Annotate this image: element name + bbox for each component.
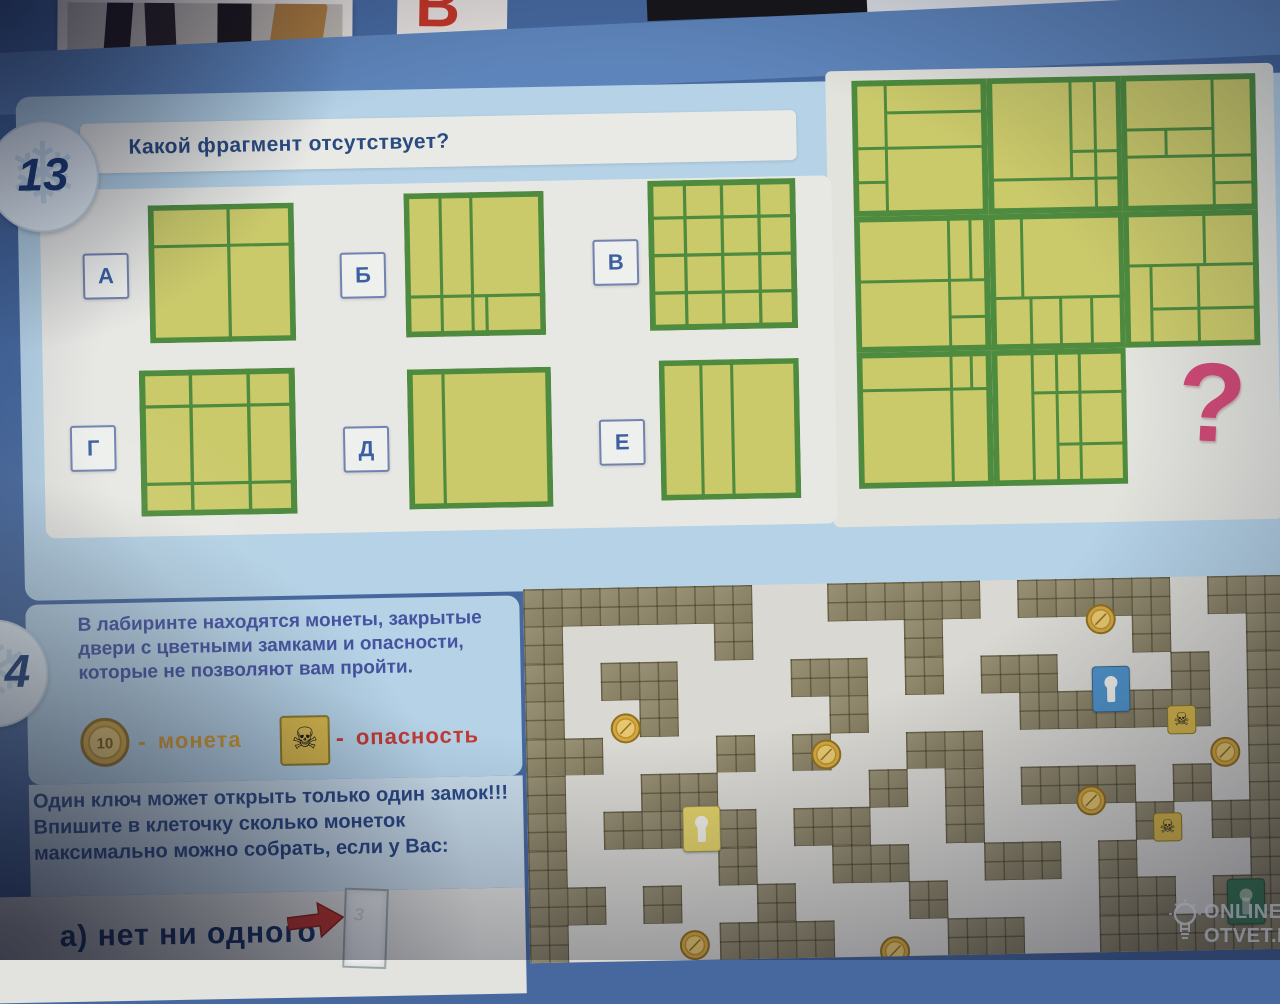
maze-wall	[564, 737, 603, 776]
maze-wall	[1132, 614, 1171, 653]
maze-wall	[795, 920, 834, 959]
maze-wall	[529, 888, 568, 927]
puzzle14-rule-text: Один ключ может открыть только один замо…	[33, 779, 520, 866]
option-label-5: Д	[343, 426, 390, 473]
maze-wall	[641, 811, 680, 850]
big-grid-tile-r0c2	[1121, 73, 1258, 212]
maze-wall	[1245, 575, 1280, 614]
maze-wall	[944, 730, 983, 769]
maze-wall	[980, 655, 1019, 694]
maze-wall	[903, 581, 942, 620]
coin-icon	[679, 929, 711, 961]
maze-wall	[714, 622, 753, 661]
maze: ☠☠	[523, 575, 1280, 964]
option-label-2: Б	[340, 252, 387, 299]
puzzle14-legend: 10 - монета ☠ - опасность	[79, 709, 520, 773]
option-label-6: Е	[599, 419, 646, 466]
maze-wall	[567, 887, 606, 926]
coin-icon	[811, 739, 843, 771]
maze-wall	[718, 847, 757, 886]
lightbulb-icon	[1168, 898, 1202, 950]
maze-wall	[904, 619, 943, 658]
legend-dash: -	[138, 729, 147, 757]
maze-wall	[527, 776, 566, 815]
maze-wall	[599, 587, 638, 626]
maze-wall	[1018, 654, 1057, 693]
option-label-3: В	[592, 239, 639, 286]
maze-wall	[603, 811, 642, 850]
maze-wall	[945, 768, 984, 807]
danger-skull-icon: ☠	[1153, 812, 1183, 842]
coin-value: 10	[96, 735, 113, 752]
maze-wall	[530, 925, 569, 963]
big-grid-tile-r2c1	[991, 348, 1128, 487]
maze-wall	[1022, 841, 1061, 880]
maze-wall	[1247, 687, 1280, 726]
maze-wall	[527, 813, 566, 852]
maze-wall	[1249, 762, 1280, 801]
maze-wall	[757, 921, 796, 960]
missing-fragment-question-mark: ?	[1174, 336, 1249, 468]
option-label-4: Г	[70, 425, 117, 472]
watermark-line2: OTVET.RU	[1204, 924, 1280, 948]
maze-wall	[829, 695, 868, 734]
maze-wall	[524, 663, 563, 702]
maze-wall	[904, 656, 943, 695]
maze-wall	[1211, 800, 1250, 839]
big-grid-tile-r1c1	[989, 212, 1126, 351]
puzzle14-intro-text: В лабиринте находятся монеты, закрытые д…	[77, 605, 520, 685]
maze-wall	[945, 805, 984, 844]
maze-wall	[831, 807, 870, 846]
maze-wall	[827, 583, 866, 622]
big-grid-tile-r0c0	[851, 78, 988, 217]
maze-wall	[1099, 877, 1138, 916]
maze-wall	[1207, 575, 1246, 614]
option-fragment-2	[403, 191, 546, 338]
big-grid-tile-r0c1	[986, 76, 1123, 215]
maze-wall	[1057, 691, 1096, 730]
maze-wall	[906, 731, 945, 770]
maze-wall	[524, 626, 563, 665]
maze-wall	[1021, 766, 1060, 805]
option-fragment-6	[659, 358, 802, 501]
maze-wall	[716, 734, 755, 773]
maze-wall	[984, 842, 1023, 881]
maze-wall	[637, 586, 676, 625]
maze-wall	[638, 661, 677, 700]
puzzle14-item-a: а) нет ни одного	[59, 915, 317, 954]
maze-wall	[757, 883, 796, 922]
legend-danger-label: опасность	[356, 722, 480, 750]
red-arrow-icon	[285, 896, 348, 945]
maze-wall	[1248, 724, 1280, 763]
maze-wall	[1017, 579, 1056, 618]
coin-icon	[1085, 604, 1117, 636]
maze-wall	[639, 699, 678, 738]
maze-wall	[1249, 799, 1280, 838]
maze-wall	[1098, 839, 1137, 878]
maze-wall	[941, 581, 980, 620]
maze-wall	[1246, 649, 1280, 688]
lock-icon	[1092, 666, 1131, 713]
coin-icon	[1075, 785, 1107, 817]
big-grid-tile-r2c0	[857, 350, 994, 489]
big-grid-tile-r1c2	[1123, 209, 1260, 348]
coin-icon	[610, 713, 642, 745]
maze-wall	[790, 658, 829, 697]
coin-icon: 10	[79, 717, 130, 768]
maze-wall	[719, 921, 758, 960]
lock-icon	[682, 806, 721, 853]
maze-wall	[641, 773, 680, 812]
option-fragment-3	[647, 178, 798, 331]
page-photo: В Какой фрагмент отсутствует? ❄ 13 АБВГД…	[0, 0, 1280, 1004]
option-fragment-4	[139, 368, 298, 517]
option-label-1: А	[83, 253, 130, 300]
maze-wall	[523, 589, 562, 628]
maze-wall	[526, 738, 565, 777]
pencil-smudge: ɜ	[354, 900, 365, 926]
maze-wall	[1099, 914, 1138, 953]
maze-wall	[985, 916, 1024, 955]
maze-wall	[1170, 651, 1209, 690]
maze-wall	[828, 658, 867, 697]
maze-wall	[713, 585, 752, 624]
maze-wall	[528, 850, 567, 889]
watermark: ONLINE OTVET.RU	[1168, 898, 1280, 955]
maze-wall	[909, 880, 948, 919]
option-fragment-5	[407, 367, 554, 510]
maze-wall	[793, 808, 832, 847]
maze-wall	[870, 844, 909, 883]
legend-coin-label: монета	[158, 727, 242, 755]
maze-wall	[1173, 763, 1212, 802]
maze-wall	[561, 588, 600, 627]
puzzle13-number: 13	[17, 147, 69, 202]
maze-wall	[525, 701, 564, 740]
maze-wall	[1019, 691, 1058, 730]
watermark-line1: ONLINE	[1204, 900, 1280, 924]
skull-icon: ☠	[279, 715, 330, 766]
maze-wall	[869, 769, 908, 808]
coin-icon	[1210, 736, 1242, 768]
puzzle14-number: 4	[4, 644, 31, 698]
maze-wall	[1250, 836, 1280, 875]
maze-wall	[947, 917, 986, 956]
answer-cell: ɜ	[342, 888, 389, 969]
coin-icon	[879, 936, 911, 964]
danger-skull-icon: ☠	[1167, 705, 1197, 735]
maze-wall	[1131, 577, 1170, 616]
maze-wall	[1246, 612, 1280, 651]
maze-wall	[717, 809, 756, 848]
maze-wall	[832, 844, 871, 883]
option-fragment-1	[148, 203, 297, 344]
big-grid-tile-r1c0	[854, 214, 991, 353]
maze-wall	[865, 582, 904, 621]
maze-wall	[600, 662, 639, 701]
maze-wall	[675, 586, 714, 625]
maze-wall	[643, 886, 682, 925]
legend-dash: -	[336, 725, 345, 753]
